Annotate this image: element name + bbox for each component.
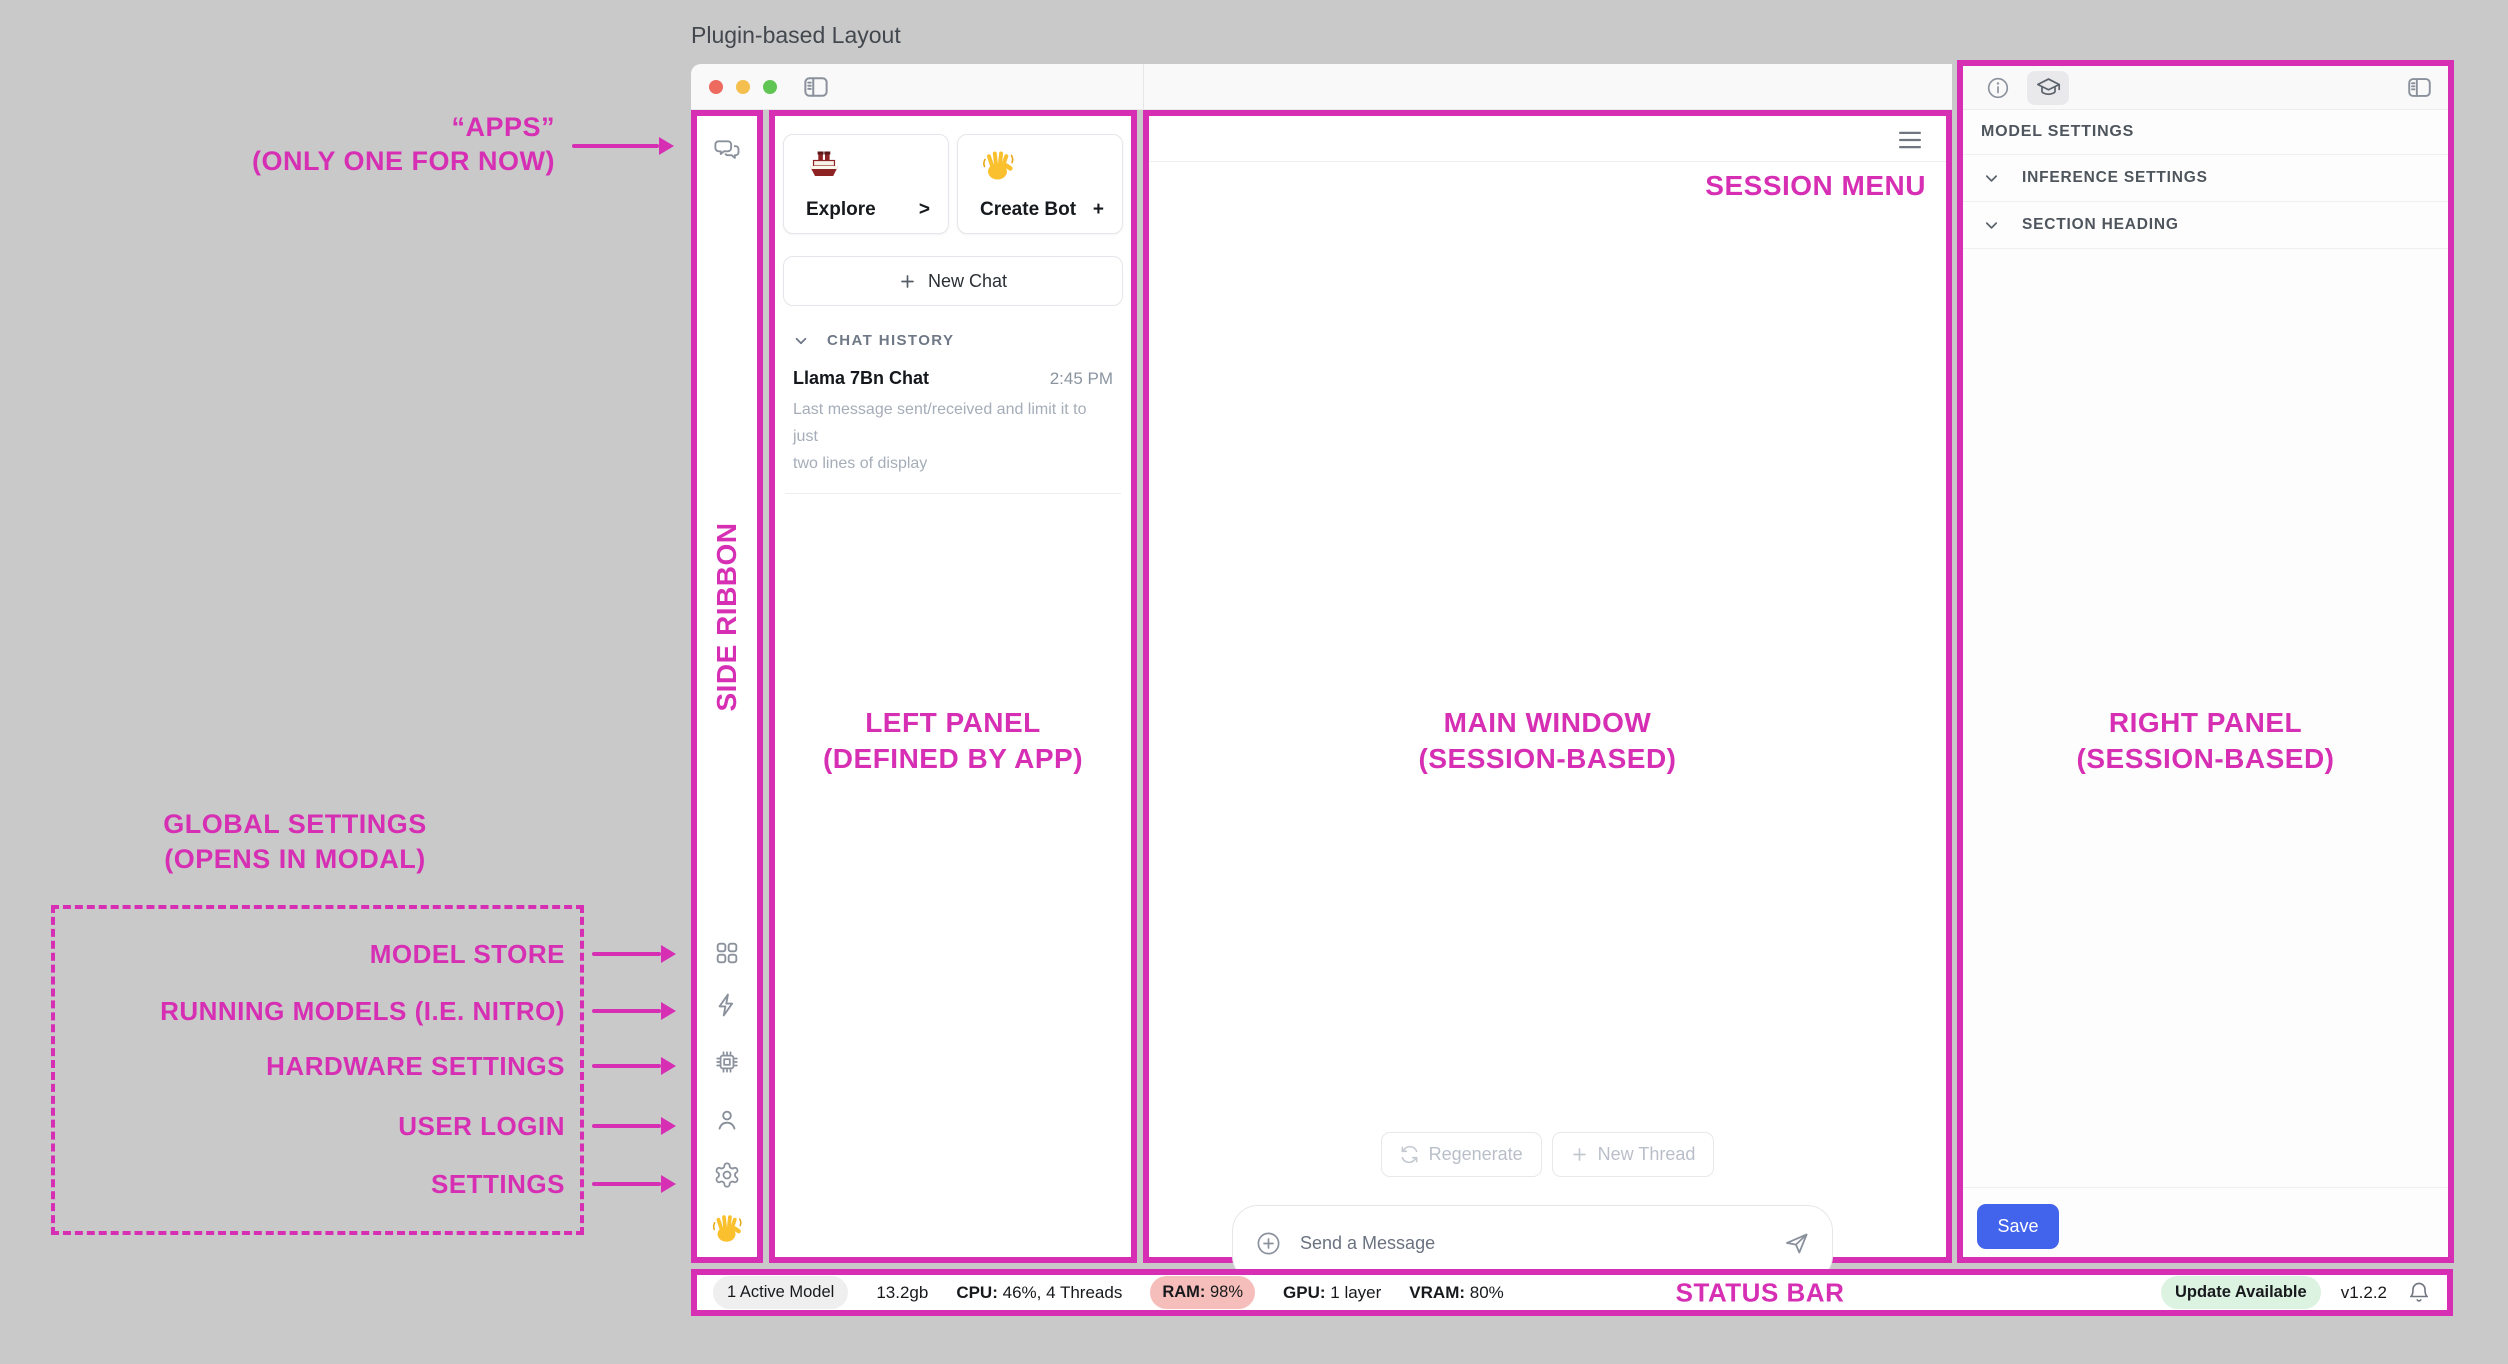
close-window-button[interactable] <box>709 80 723 94</box>
status-bar: 1 Active Model 13.2gb CPU: 46%, 4 Thread… <box>691 1269 2453 1316</box>
left-panel-annotation: LEFT PANEL (DEFINED BY APP) <box>775 705 1131 777</box>
settings-annotation: SETTINGS <box>103 1168 565 1200</box>
window-titlebar <box>691 64 1952 110</box>
ram-badge: RAM: 98% <box>1150 1276 1255 1309</box>
user-login-icon[interactable] <box>713 1106 741 1134</box>
chat-title: Llama 7Bn Chat <box>793 368 929 389</box>
design-canvas: Plugin-based Layout SIDE RIBBON <box>0 0 2508 1364</box>
send-paper-plane-icon[interactable] <box>1783 1230 1810 1257</box>
save-area: Save <box>1963 1187 2448 1249</box>
hardware-chip-icon[interactable] <box>713 1048 741 1076</box>
main-topbar <box>1149 116 1946 162</box>
bell-icon[interactable] <box>2407 1281 2431 1305</box>
settings-gear-icon[interactable] <box>713 1161 741 1189</box>
create-bot-label: Create Bot <box>980 199 1076 221</box>
right-sidebar-toggle-icon[interactable] <box>2405 73 2434 102</box>
new-thread-button[interactable]: New Thread <box>1552 1132 1715 1177</box>
hardware-settings-annotation: HARDWARE SETTINGS <box>103 1050 565 1082</box>
attach-plus-circle-icon[interactable] <box>1255 1230 1282 1257</box>
chevron-down-icon <box>793 333 809 349</box>
app-version: v1.2.2 <box>2341 1283 2387 1303</box>
minimize-window-button[interactable] <box>736 80 750 94</box>
main-window: SESSION MENU MAIN WINDOW (SESSION-BASED)… <box>1143 110 1952 1263</box>
running-models-lightning-icon[interactable] <box>713 991 741 1019</box>
create-bot-plus[interactable]: + <box>1093 199 1104 221</box>
section-heading-label: SECTION HEADING <box>2022 216 2179 234</box>
create-bot-card[interactable]: Create Bot + <box>957 134 1123 234</box>
regenerate-button[interactable]: Regenerate <box>1381 1132 1542 1177</box>
model-settings-heading-row: MODEL SETTINGS <box>1963 110 2448 155</box>
hardware-settings-arrow <box>592 1056 676 1076</box>
titlebar-divider <box>1143 64 1144 109</box>
new-chat-button[interactable]: New Chat <box>783 256 1123 306</box>
gpu-stat: GPU: 1 layer <box>1283 1283 1381 1303</box>
settings-arrow <box>592 1174 676 1194</box>
chat-preview-line1: Last message sent/received and limit it … <box>793 396 1113 450</box>
refresh-icon <box>1400 1145 1419 1164</box>
memory-usage: 13.2gb <box>876 1283 928 1303</box>
explore-card[interactable]: Explore > <box>783 134 949 234</box>
ship-emoji-icon <box>806 147 842 183</box>
running-models-arrow <box>592 1001 676 1021</box>
thread-actions: Regenerate New Thread <box>1149 1132 1946 1177</box>
vram-stat: VRAM: 80% <box>1409 1283 1503 1303</box>
active-models-badge: 1 Active Model <box>713 1276 848 1309</box>
chat-time: 2:45 PM <box>1050 369 1113 389</box>
info-tab[interactable] <box>1977 71 2019 105</box>
model-store-annotation: MODEL STORE <box>103 938 565 970</box>
sidebar-toggle-icon[interactable] <box>801 72 831 102</box>
message-input[interactable] <box>1298 1232 1767 1255</box>
new-chat-label: New Chat <box>928 271 1007 292</box>
chat-history-header[interactable]: CHAT HISTORY <box>793 332 954 349</box>
zoom-window-button[interactable] <box>763 80 777 94</box>
regenerate-label: Regenerate <box>1429 1144 1523 1165</box>
model-settings-heading: MODEL SETTINGS <box>1981 123 2134 141</box>
update-available-badge[interactable]: Update Available <box>2161 1276 2321 1309</box>
page-title: Plugin-based Layout <box>691 22 901 49</box>
explore-label: Explore <box>806 199 876 221</box>
cpu-stat: CPU: 46%, 4 Threads <box>956 1283 1122 1303</box>
chat-app-icon[interactable] <box>712 135 742 165</box>
new-thread-label: New Thread <box>1598 1144 1696 1165</box>
waving-hand-emoji-icon <box>980 147 1016 183</box>
plus-icon <box>899 273 916 290</box>
chevron-down-icon <box>1983 217 2000 234</box>
apps-annotation: “APPS” (ONLY ONE FOR NOW) <box>155 110 555 178</box>
chat-history-item[interactable]: Llama 7Bn Chat 2:45 PM Last message sent… <box>785 368 1121 494</box>
model-settings-tab[interactable] <box>2027 71 2069 105</box>
info-circle-icon <box>1985 75 2011 101</box>
session-menu-annotation: SESSION MENU <box>1705 170 1926 202</box>
chat-history-label: CHAT HISTORY <box>827 332 954 349</box>
right-panel-annotation: RIGHT PANEL (SESSION-BASED) <box>1963 705 2448 777</box>
right-panel-header <box>1963 66 2448 110</box>
explore-chevron[interactable]: > <box>919 199 930 221</box>
app-cards-row: Explore > <box>783 134 1123 234</box>
waving-hand-icon[interactable] <box>710 1211 744 1245</box>
side-ribbon: SIDE RIBBON <box>691 110 763 1263</box>
model-store-arrow <box>592 944 676 964</box>
status-bar-annotation: STATUS BAR <box>1676 1277 1845 1308</box>
chevron-down-icon <box>1983 170 2000 187</box>
inference-settings-label: INFERENCE SETTINGS <box>2022 169 2208 187</box>
user-login-annotation: USER LOGIN <box>103 1110 565 1142</box>
global-settings-annotation: GLOBAL SETTINGS (OPENS IN MODAL) <box>90 807 500 877</box>
user-login-arrow <box>592 1116 676 1136</box>
main-window-annotation: MAIN WINDOW (SESSION-BASED) <box>1149 705 1946 777</box>
right-panel: MODEL SETTINGS INFERENCE SETTINGS SECTIO… <box>1957 60 2454 1263</box>
session-menu-icon[interactable] <box>1896 129 1924 151</box>
side-ribbon-annotation: SIDE RIBBON <box>711 522 743 711</box>
left-panel: Explore > <box>769 110 1137 1263</box>
traffic-lights <box>709 80 777 94</box>
save-button[interactable]: Save <box>1977 1204 2059 1249</box>
plus-icon <box>1571 1146 1588 1163</box>
running-models-annotation: RUNNING MODELS (I.E. NITRO) <box>103 995 565 1027</box>
section-heading-section[interactable]: SECTION HEADING <box>1963 202 2448 249</box>
inference-settings-section[interactable]: INFERENCE SETTINGS <box>1963 155 2448 202</box>
model-store-grid-icon[interactable] <box>713 939 741 967</box>
graduation-cap-icon <box>2035 74 2062 101</box>
apps-arrow <box>572 136 674 156</box>
chat-preview-line2: two lines of display <box>793 450 1113 477</box>
